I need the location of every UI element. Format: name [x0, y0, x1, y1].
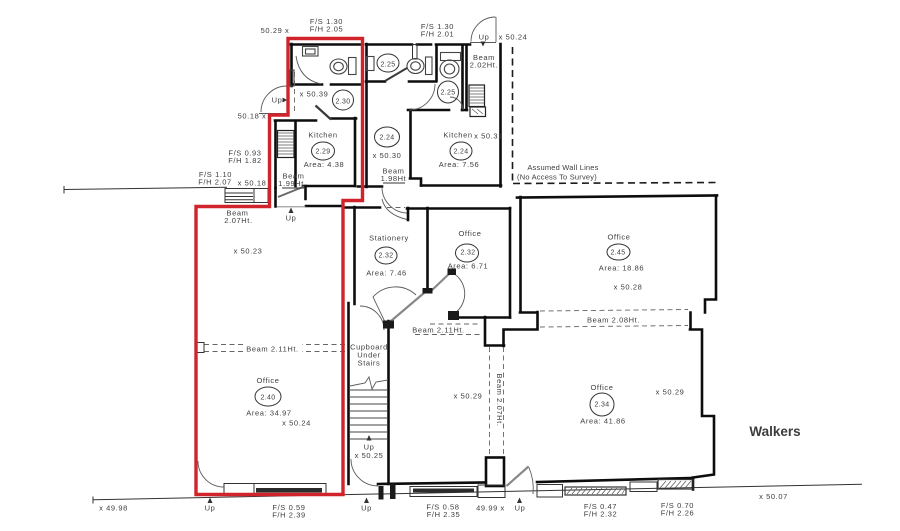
svg-text:Up: Up — [286, 214, 297, 223]
svg-text:Beam 2.11Ht.: Beam 2.11Ht. — [246, 345, 299, 354]
svg-text:Area: 4.38: Area: 4.38 — [304, 160, 345, 169]
svg-text:Up: Up — [515, 504, 526, 513]
svg-text:Office: Office — [458, 229, 481, 238]
svg-text:Area: 41.86: Area: 41.86 — [580, 417, 625, 426]
svg-text:x 50.24: x 50.24 — [282, 419, 311, 428]
svg-text:2.32: 2.32 — [460, 250, 475, 257]
svg-text:Assumed Wall Lines: Assumed Wall Lines — [527, 163, 598, 172]
svg-text:Up: Up — [361, 504, 372, 513]
svg-text:2.24: 2.24 — [379, 135, 394, 142]
svg-text:1.98Ht: 1.98Ht — [381, 174, 407, 183]
svg-text:2.34: 2.34 — [594, 402, 609, 409]
svg-text:2.25: 2.25 — [380, 62, 395, 69]
svg-text:2.32: 2.32 — [378, 253, 393, 260]
svg-text:F/H 2.39: F/H 2.39 — [272, 511, 306, 520]
svg-text:Area: 7.56: Area: 7.56 — [439, 160, 480, 169]
svg-text:x 50.29: x 50.29 — [656, 388, 685, 397]
svg-text:50.18 x: 50.18 x — [238, 112, 267, 121]
svg-text:F/H 1.82: F/H 1.82 — [228, 156, 262, 165]
svg-text:2.02Ht.: 2.02Ht. — [470, 61, 498, 70]
svg-text:(No Access To Survey): (No Access To Survey) — [517, 173, 597, 182]
svg-text:x 50.24: x 50.24 — [499, 33, 528, 42]
svg-text:Office: Office — [607, 233, 630, 242]
svg-text:x 50.07: x 50.07 — [759, 492, 788, 501]
svg-text:Area: 34.97: Area: 34.97 — [246, 409, 291, 418]
svg-text:F/H 2.35: F/H 2.35 — [427, 510, 461, 519]
svg-text:2.40: 2.40 — [260, 395, 275, 402]
svg-text:1.99Ht.: 1.99Ht. — [278, 179, 306, 188]
svg-text:Kitchen: Kitchen — [308, 131, 337, 140]
svg-text:49.99 x: 49.99 x — [476, 504, 505, 513]
svg-text:Walkers: Walkers — [749, 424, 800, 439]
svg-text:x 49.98: x 49.98 — [99, 504, 128, 513]
svg-text:2.25: 2.25 — [440, 90, 455, 97]
svg-text:Area: 6.71: Area: 6.71 — [448, 262, 489, 271]
svg-text:x 50.18: x 50.18 — [238, 179, 267, 188]
svg-text:x 50.28: x 50.28 — [614, 283, 643, 292]
svg-text:Stairs: Stairs — [358, 359, 381, 368]
svg-text:2.24: 2.24 — [453, 149, 468, 156]
svg-text:F/H 2.01: F/H 2.01 — [421, 30, 455, 39]
svg-text:x 50.31: x 50.31 — [474, 132, 503, 141]
svg-text:F/H 2.26: F/H 2.26 — [661, 509, 695, 518]
svg-text:Kitchen: Kitchen — [443, 131, 472, 140]
svg-text:Up: Up — [272, 96, 283, 105]
svg-text:Stationery: Stationery — [369, 234, 409, 243]
svg-text:x 50.23: x 50.23 — [234, 247, 263, 256]
svg-text:2.45: 2.45 — [610, 250, 625, 257]
svg-text:2.07Ht.: 2.07Ht. — [224, 216, 252, 225]
svg-text:F/H 2.07: F/H 2.07 — [198, 178, 232, 187]
svg-text:50.29 x: 50.29 x — [261, 26, 290, 35]
svg-text:x 50.39: x 50.39 — [300, 90, 329, 99]
svg-text:x 50.25: x 50.25 — [355, 451, 384, 460]
svg-text:Office: Office — [256, 376, 279, 385]
svg-text:Up: Up — [205, 504, 216, 513]
svg-text:2.30: 2.30 — [335, 99, 350, 106]
svg-text:Area: 7.46: Area: 7.46 — [366, 269, 407, 278]
svg-text:F/H 2.32: F/H 2.32 — [584, 510, 618, 519]
svg-text:Area: 18.86: Area: 18.86 — [599, 264, 644, 273]
svg-text:x 50.29: x 50.29 — [454, 392, 483, 401]
svg-text:x 50.30: x 50.30 — [373, 151, 402, 160]
svg-text:2.29: 2.29 — [315, 149, 330, 156]
svg-text:Beam 2.11Ht.: Beam 2.11Ht. — [412, 326, 465, 335]
svg-text:F/H 2.05: F/H 2.05 — [310, 25, 344, 34]
svg-text:Beam 2.07Ht.: Beam 2.07Ht. — [495, 373, 504, 426]
svg-text:Office: Office — [590, 383, 613, 392]
svg-text:Up: Up — [479, 33, 490, 42]
svg-text:Beam 2.08Ht.: Beam 2.08Ht. — [587, 316, 640, 325]
